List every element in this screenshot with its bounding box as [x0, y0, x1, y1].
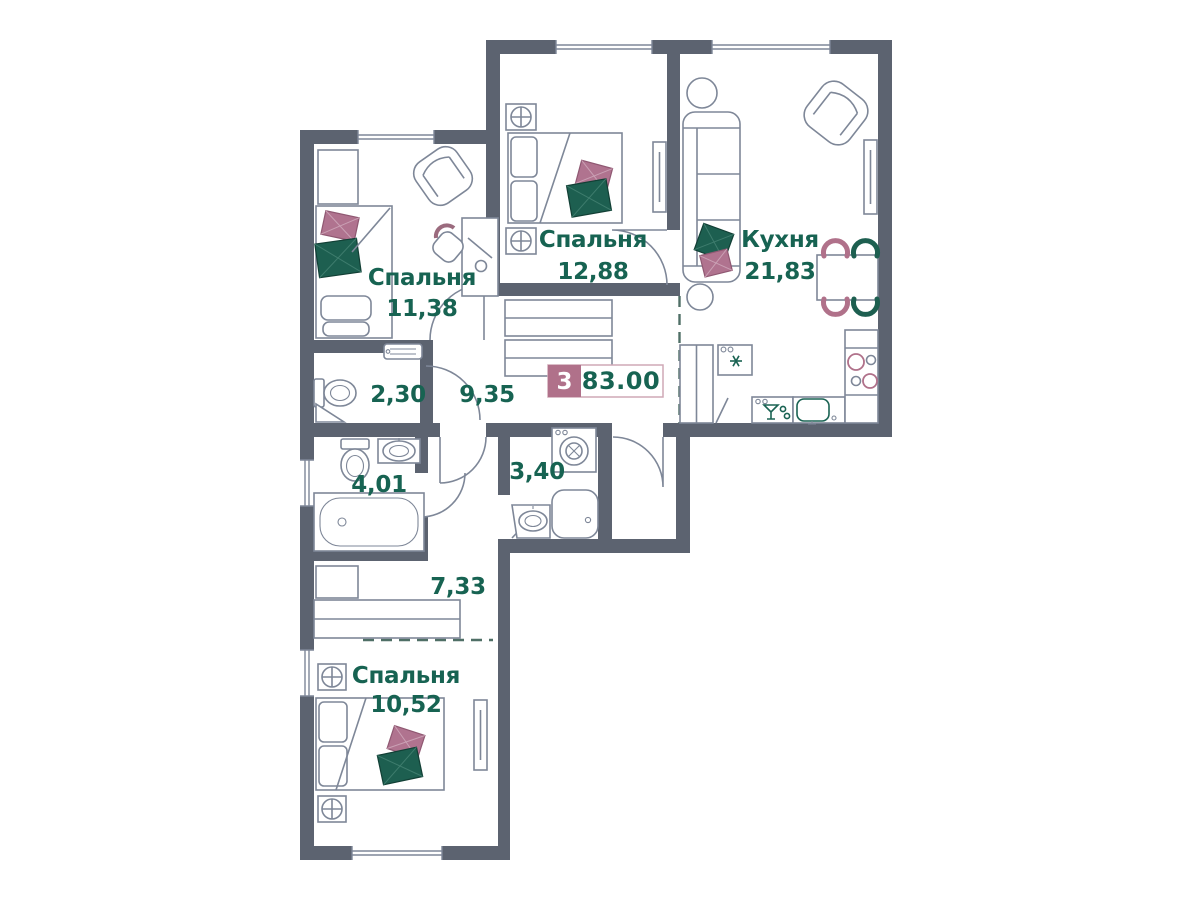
bathroom-area-label: 4,01 [351, 472, 407, 498]
toilet-icon [314, 379, 356, 407]
wall-segment [498, 437, 510, 495]
wall-segment [663, 423, 892, 437]
tv-console-icon [864, 140, 877, 214]
rooms-count-value: 3 [556, 369, 572, 395]
sofa-icon [683, 112, 740, 282]
stove-icon [845, 330, 878, 423]
wardrobe-icon [314, 600, 460, 638]
bedroom1-area-label: 11,38 [386, 296, 457, 322]
wardrobe-icon [316, 566, 358, 598]
wc-area-label: 2,30 [370, 382, 426, 408]
ventilation-shaft-icon [680, 345, 713, 423]
bathtub-icon [314, 493, 424, 551]
bedroom3-area-label: 10,52 [370, 692, 441, 718]
kitchen-area-label: 21,83 [744, 259, 815, 285]
towel-radiator-icon [384, 344, 422, 359]
wall-segment [676, 437, 690, 539]
wall-segment [878, 40, 892, 437]
laundry-area-label: 3,40 [509, 459, 565, 485]
washbasin-icon [378, 438, 420, 463]
bedroom2-name-label: Спальня [539, 227, 647, 253]
window [352, 846, 442, 860]
wall-segment [667, 54, 680, 230]
wall-segment [486, 40, 892, 54]
tv-console-icon [474, 700, 487, 770]
bed-icon [508, 133, 622, 223]
pillow-icon [567, 179, 612, 217]
window [300, 460, 314, 506]
total-area-value: 83.00 [582, 367, 660, 395]
wardrobe-icon [318, 150, 358, 204]
bedroom2-area-label: 12,88 [557, 259, 628, 285]
bar-counter-icon [752, 397, 793, 423]
fridge-icon [718, 345, 752, 375]
total-area-badge: 3 83.00 [548, 365, 663, 397]
floor-plan-canvas: 3 83.00 Спальня 11,38 Спальня 12,88 Кухн… [0, 0, 1200, 900]
pillow-icon [315, 238, 361, 278]
nightstand-lamp-icon [318, 664, 346, 690]
wall-segment [598, 437, 612, 553]
kitchen-name-label: Кухня [741, 227, 819, 253]
nightstand-lamp-icon [506, 228, 536, 254]
shower-tray-icon [552, 490, 598, 538]
floor-plan-page: 3 83.00 Спальня 11,38 Спальня 12,88 Кухн… [0, 0, 1200, 900]
wall-segment [498, 539, 510, 860]
nightstand-lamp-icon [318, 796, 346, 822]
tv-console-icon [653, 142, 666, 212]
window [712, 40, 830, 54]
wall-segment [498, 539, 690, 553]
hallway-area-label: 9,35 [459, 382, 515, 408]
washbasin-icon [512, 505, 550, 538]
bedroom3-name-label: Спальня [352, 663, 460, 689]
wall-segment [300, 423, 440, 437]
corridor-area-label: 7,33 [430, 574, 486, 600]
bedroom1-name-label: Спальня [368, 265, 476, 291]
nightstand-lamp-icon [506, 104, 536, 130]
window [300, 650, 314, 696]
window [358, 130, 434, 144]
kitchen-sink-icon [793, 397, 845, 424]
window [556, 40, 652, 54]
